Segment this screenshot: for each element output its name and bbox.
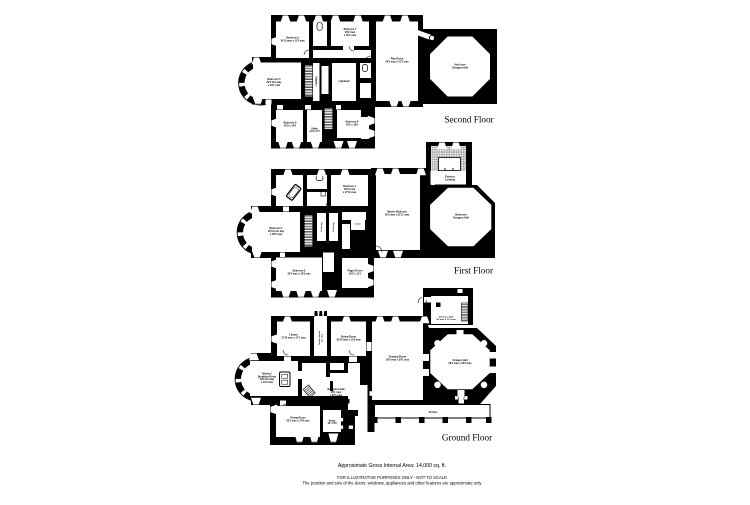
svg-text:Bedroom 720'2 maxx 16'1 max: Bedroom 720'2 maxx 16'1 max	[344, 28, 357, 37]
svg-text:Bedroom 524'2 into bayx 16'1 m: Bedroom 524'2 into bayx 16'1 max	[266, 78, 282, 87]
svg-text:Lightwell: Lightwell	[339, 80, 350, 83]
svg-text:Approximate Gross Internal Are: Approximate Gross Internal Area: 14,000 …	[338, 463, 446, 469]
svg-text:FOR ILLUSTRATIVE PURPOSES ONLY: FOR ILLUSTRATIVE PURPOSES ONLY - NOT TO …	[337, 475, 447, 480]
svg-text:First Floor: First Floor	[454, 266, 493, 276]
svg-text:Bedroom 818'1 x 16'5: Bedroom 818'1 x 16'5	[346, 120, 359, 126]
svg-text:Portico: Portico	[429, 411, 438, 414]
svg-text:Pages Room16'2 x 12'1: Pages Room16'2 x 12'1	[348, 269, 364, 275]
svg-text:Bedroom 126'11 into bayx 18'5: Bedroom 126'11 into bayx 18'5 max	[268, 227, 285, 236]
svg-text:Dressing: Dressing	[332, 222, 335, 232]
svg-text:Master Bedroom16'5 max x 21'11: Master Bedroom16'5 max x 21'11 max	[385, 210, 410, 216]
svg-text:Second Floor: Second Floor	[444, 115, 493, 125]
svg-text:Bedroom 419'10 maxx 17'10 max: Bedroom 419'10 maxx 17'10 max	[343, 185, 357, 194]
svg-text:Linen: Linen	[355, 224, 361, 226]
svg-text:Dressing: Dressing	[320, 222, 323, 232]
svg-text:Landing: Landing	[316, 76, 318, 86]
svg-text:ExteriorLanding: ExteriorLanding	[445, 174, 456, 181]
svg-text:Bedroom 920'2 x 14'9: Bedroom 920'2 x 14'9	[284, 121, 297, 127]
svg-text:Ground Floor: Ground Floor	[442, 433, 492, 443]
svg-text:The position and size of the d: The position and size of the doors, wind…	[302, 480, 482, 485]
